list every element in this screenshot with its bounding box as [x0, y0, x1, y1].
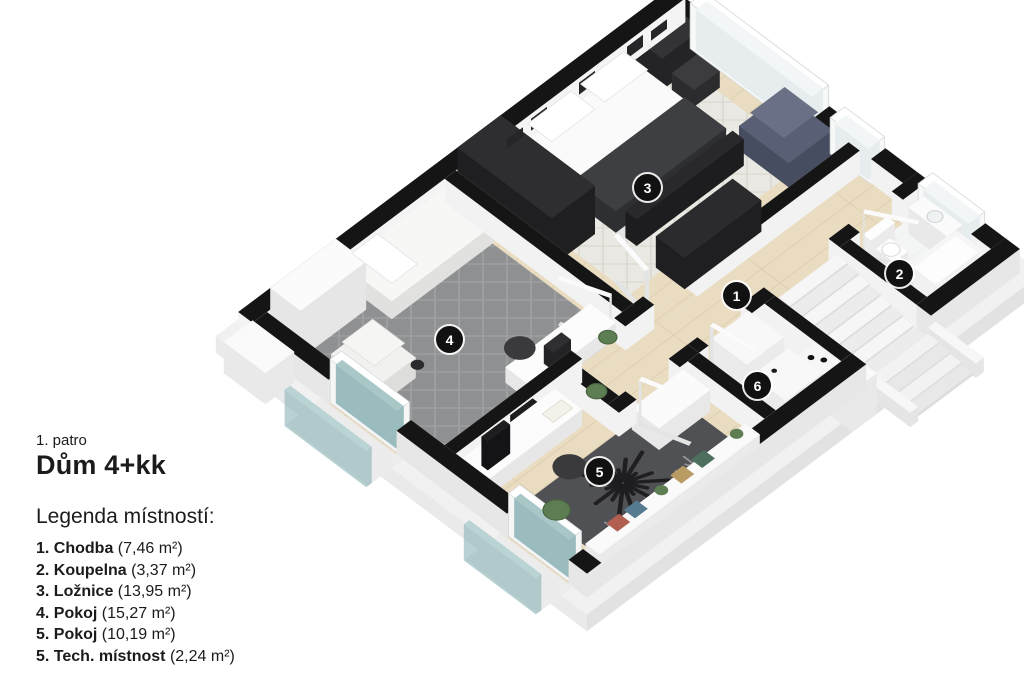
room-badge-6: 6: [744, 372, 771, 399]
legend-item-area: (13,95 m²): [118, 583, 192, 600]
legend-item-1: 1. Chodba (7,46 m²): [36, 538, 235, 560]
legend-item-area: (3,37 m²): [131, 562, 196, 579]
legend-item-4: 4. Pokoj (15,27 m²): [36, 603, 235, 625]
legend-item-label: 3. Ložnice: [36, 583, 118, 600]
room-badge-1: 1: [723, 282, 750, 309]
legend-item-5: 5. Pokoj (10,19 m²): [36, 624, 235, 646]
legend-item-area: (15,27 m²): [102, 605, 176, 622]
room-badge-2: 2: [886, 260, 913, 287]
legend-heading: Legenda místností:: [36, 505, 235, 529]
legend-item-area: (10,19 m²): [102, 626, 176, 643]
legend-item-area: (2,24 m²): [170, 648, 235, 665]
legend-item-label: 2. Koupelna: [36, 562, 131, 579]
floor-label: 1. patro: [36, 432, 235, 449]
legend-item-area: (7,46 m²): [118, 540, 183, 557]
legend: 1. patro Dům 4+kk Legenda místností: 1. …: [36, 432, 235, 668]
legend-item-2: 2. Koupelna (3,37 m²): [36, 560, 235, 582]
legend-items: 1. Chodba (7,46 m²)2. Koupelna (3,37 m²)…: [36, 538, 235, 668]
legend-item-6: 5. Tech. místnost (2,24 m²): [36, 646, 235, 668]
legend-item-label: 1. Chodba: [36, 540, 118, 557]
plan-title: Dům 4+kk: [36, 450, 235, 481]
legend-item-label: 5. Pokoj: [36, 626, 102, 643]
room-badge-5: 5: [586, 458, 613, 485]
page-root: 1 2 3 4 5 6 1. patro Dům 4+kk Legenda mí…: [0, 0, 1024, 684]
room-badge-4: 4: [436, 326, 463, 353]
legend-item-3: 3. Ložnice (13,95 m²): [36, 581, 235, 603]
legend-item-label: 5. Tech. místnost: [36, 648, 170, 665]
legend-item-label: 4. Pokoj: [36, 605, 102, 622]
room-badge-3: 3: [634, 174, 661, 201]
